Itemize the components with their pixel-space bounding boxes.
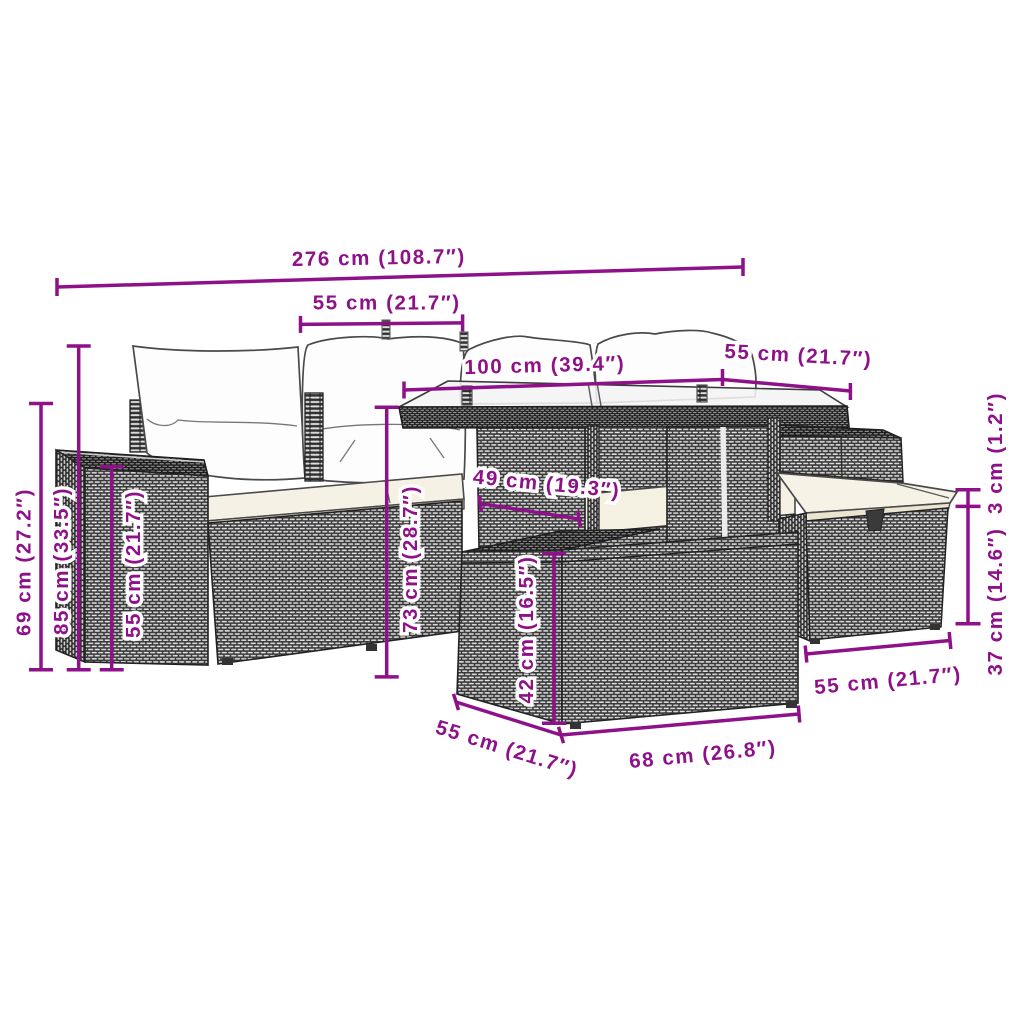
svg-text:3 cm (1.2″): 3 cm (1.2″): [984, 392, 1007, 514]
svg-text:55 cm (21.7″): 55 cm (21.7″): [122, 490, 145, 638]
svg-text:55 cm (21.7″): 55 cm (21.7″): [313, 291, 461, 314]
svg-text:276 cm (108.7″): 276 cm (108.7″): [292, 245, 466, 271]
svg-text:42 cm (16.5″): 42 cm (16.5″): [515, 556, 538, 704]
svg-text:73 cm (28.7″): 73 cm (28.7″): [399, 485, 422, 633]
svg-text:69 cm (27.2″): 69 cm (27.2″): [13, 488, 36, 636]
svg-text:100 cm (39.4″): 100 cm (39.4″): [464, 352, 626, 379]
svg-text:85 cm (33.5″): 85 cm (33.5″): [50, 487, 73, 635]
svg-text:37 cm (14.6″): 37 cm (14.6″): [984, 528, 1007, 676]
